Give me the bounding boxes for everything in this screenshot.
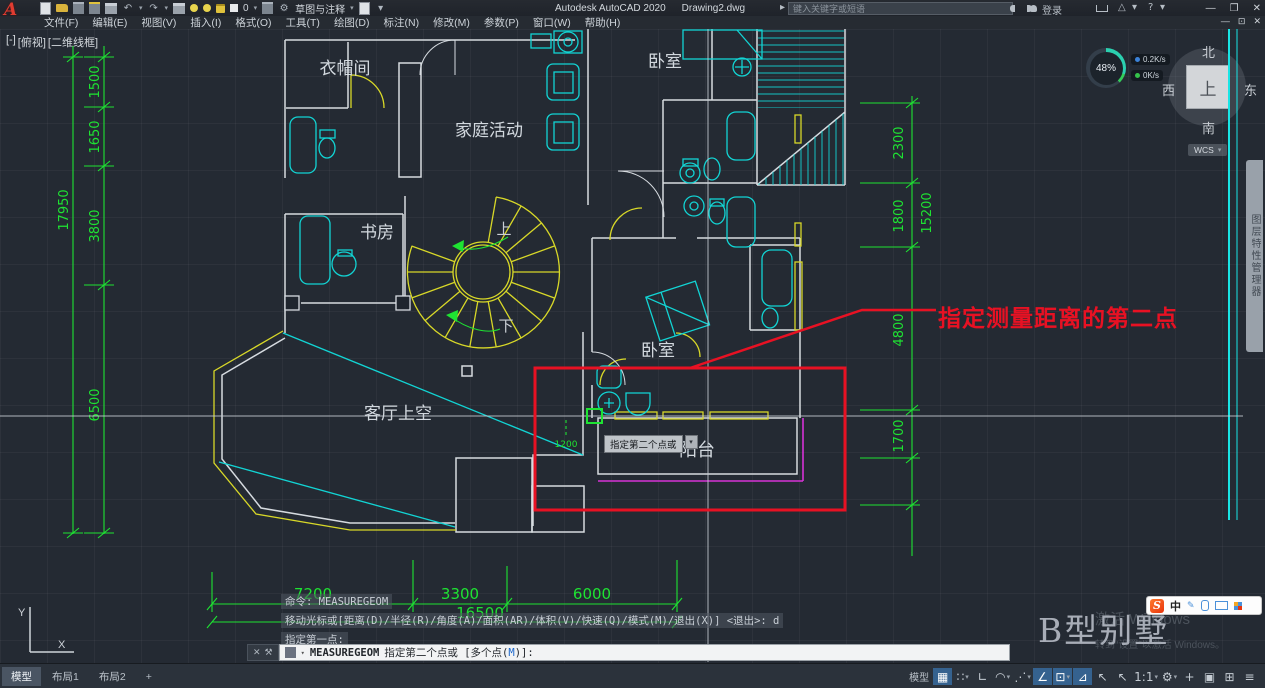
customization-button[interactable]: + — [1180, 668, 1199, 685]
help-search-input[interactable]: 键入关键字或短语 — [788, 2, 1013, 15]
layer-bulb-icon[interactable] — [190, 4, 198, 12]
gauge-percent: 48% — [1096, 63, 1116, 74]
close-button[interactable]: ✕ — [1253, 3, 1261, 14]
ime-toolbar: S 中 ✎ — [1146, 596, 1262, 615]
upload-dot-icon — [1135, 57, 1140, 62]
help-icon[interactable]: ? — [1148, 2, 1153, 13]
layer-lock-icon[interactable] — [216, 4, 225, 13]
autodesk-app-caret-icon[interactable]: ▾ — [1132, 2, 1137, 13]
viewcube-top-face[interactable]: 上 — [1186, 65, 1230, 109]
app-title: Autodesk AutoCAD 2020 — [555, 3, 666, 14]
annotation-scale-button[interactable]: 1:1▾ — [1133, 668, 1159, 685]
viewcube-east[interactable]: 东 — [1244, 80, 1257, 99]
ime-mic-icon[interactable] — [1201, 600, 1209, 611]
layer-combo-caret-icon[interactable]: ▾ — [254, 4, 258, 12]
menu-draw[interactable]: 绘图(D) — [328, 15, 376, 30]
workspace-save-icon[interactable] — [262, 2, 273, 14]
command-badge-icon — [285, 647, 296, 658]
doc-minimize-button[interactable]: — — [1221, 16, 1230, 27]
selection-cycling-button[interactable]: ↖ — [1093, 668, 1112, 685]
workspace-combo-caret-icon[interactable]: ▾ — [350, 4, 354, 12]
undo-caret-icon[interactable]: ▾ — [139, 4, 143, 12]
polar-tracking-button[interactable]: ◠▾ — [993, 668, 1012, 685]
viewcube-north[interactable]: 北 — [1202, 42, 1215, 61]
active-command: MEASUREGEOM — [310, 647, 380, 659]
tab-add-layout[interactable]: + — [137, 669, 161, 685]
view-control-button[interactable]: [俯视] — [18, 34, 46, 50]
layer-freeze-icon[interactable] — [203, 4, 211, 12]
ortho-toggle-button[interactable]: ∟ — [973, 668, 992, 685]
match-properties-icon[interactable] — [359, 2, 370, 15]
print-icon[interactable] — [173, 3, 185, 14]
new-file-icon[interactable] — [40, 2, 51, 15]
object-snap-tracking-button[interactable]: ∠ — [1033, 668, 1052, 685]
tooltip-text: 指定第二个点或 — [604, 435, 683, 453]
space-toggle-button[interactable]: 模型 — [906, 669, 932, 684]
menu-view[interactable]: 视图(V) — [135, 15, 182, 30]
download-dot-icon — [1135, 73, 1140, 78]
user-icon[interactable] — [1030, 4, 1037, 15]
autocad-logo[interactable]: A — [4, 0, 28, 26]
plot-icon[interactable] — [105, 3, 117, 14]
dynamic-input-tooltip: 指定第二个点或 ▾ — [604, 435, 698, 453]
viewcube-west[interactable]: 西 — [1162, 80, 1175, 99]
command-close-icon[interactable]: ✕ — [253, 648, 261, 658]
menu-window[interactable]: 窗口(W) — [527, 15, 577, 30]
object-snap-button[interactable]: ⊿ — [1073, 668, 1092, 685]
ime-toolbox-icon[interactable] — [1234, 602, 1242, 610]
ime-pen-icon[interactable]: ✎ — [1187, 601, 1195, 611]
tab-layout2[interactable]: 布局2 — [90, 667, 135, 686]
menu-insert[interactable]: 插入(I) — [184, 15, 227, 30]
isolate-objects-button[interactable]: ▣ — [1200, 668, 1219, 685]
menu-dimension[interactable]: 标注(N) — [378, 15, 426, 30]
menu-help[interactable]: 帮助(H) — [579, 15, 627, 30]
command-history-line1: 命令: MEASUREGEOM — [281, 594, 392, 609]
wcs-label: WCS — [1194, 145, 1214, 155]
command-line-bar: ✕ ⚒ ▾ MEASUREGEOM 指定第二个点或 [多个点(M)]: — [247, 644, 1010, 661]
menu-edit[interactable]: 编辑(E) — [86, 15, 133, 30]
menu-bar: 文件(F) 编辑(E) 视图(V) 插入(I) 格式(O) 工具(T) 绘图(D… — [0, 16, 1265, 29]
doc-close-button[interactable]: ✕ — [1253, 16, 1261, 27]
layer-color-swatch — [230, 4, 238, 12]
doc-restore-button[interactable]: ⊡ — [1238, 16, 1246, 27]
status-bar: 模型 布局1 布局2 + 模型 ▦ ∷▾ ∟ ◠▾ ⋰▾ ∠ ⊡▾ ⊿ ↖ ↖ … — [0, 663, 1265, 688]
status-menu-button[interactable]: ≡ — [1240, 668, 1259, 685]
grid-toggle-button[interactable]: ▦ — [933, 668, 952, 685]
app-store-cart-icon[interactable] — [1096, 4, 1108, 15]
menu-modify[interactable]: 修改(M) — [427, 15, 476, 30]
sogou-logo-icon[interactable]: S — [1150, 599, 1164, 613]
command-history-line2: 移动光标或[距离(D)/半径(R)/角度(A)/面积(AR)/体积(V)/快速(… — [281, 613, 783, 628]
workspace-combo-value[interactable]: 草图与注释 — [295, 1, 345, 16]
status-toggles: 模型 ▦ ∷▾ ∟ ◠▾ ⋰▾ ∠ ⊡▾ ⊿ ↖ ↖ 1:1▾ ⚙▾ + ▣ ⊞… — [906, 668, 1265, 685]
view-cube[interactable]: 北 西 东 南 上 — [1160, 40, 1260, 140]
annotation-visibility-button[interactable]: ↖ — [1113, 668, 1132, 685]
command-input[interactable]: ▾ MEASUREGEOM 指定第二个点或 [多个点(M)]: — [279, 644, 1010, 661]
tooltip-down-arrow-icon: ▾ — [685, 435, 698, 449]
visual-style-button[interactable]: [二维线框] — [48, 34, 98, 50]
command-line-grip[interactable]: ✕ ⚒ — [247, 644, 279, 661]
doc-title: Drawing2.dwg — [682, 3, 745, 14]
sign-in-button[interactable]: 登录 — [1042, 2, 1062, 17]
wcs-menu[interactable]: WCS ▾ — [1188, 144, 1227, 156]
help-caret-icon[interactable]: ▾ — [1160, 2, 1165, 13]
save-as-icon[interactable] — [89, 2, 100, 14]
document-window-controls: — ⊡ ✕ — [1221, 16, 1261, 27]
open-file-icon[interactable] — [56, 4, 68, 12]
menu-tools[interactable]: 工具(T) — [280, 15, 326, 30]
snap-toggle-button[interactable]: ∷▾ — [953, 668, 972, 685]
save-icon[interactable] — [73, 2, 84, 14]
recent-commands-caret-icon[interactable]: ▾ — [301, 649, 305, 657]
minimize-button[interactable]: — — [1206, 3, 1216, 14]
window-title: Autodesk AutoCAD 2020 Drawing2.dwg — [555, 0, 745, 16]
tab-layout1[interactable]: 布局1 — [43, 667, 88, 686]
autodesk-app-icon[interactable]: △ — [1118, 2, 1126, 13]
viewcube-south[interactable]: 南 — [1202, 118, 1215, 137]
quick-access-toolbar: ↶ ▾ ↷ ▾ 0 ▾ ⚙ 草图与注释 ▾ ▾ — [40, 1, 387, 16]
performance-gauge[interactable]: 48% — [1086, 48, 1126, 88]
viewport-controls: [-] [俯视] [二维线框] — [6, 34, 98, 50]
collapsed-palette-tab[interactable]: 图层特性管理器 — [1246, 160, 1263, 352]
command-prompt: 指定第二个点或 [多个点(M)]: — [384, 645, 533, 660]
net-down-badge: 0K/s — [1131, 70, 1163, 81]
menu-parametric[interactable]: 参数(P) — [478, 15, 525, 30]
model-space-canvas[interactable] — [0, 29, 1265, 663]
isodraft-button[interactable]: ⋰▾ — [1013, 668, 1032, 685]
redo-caret-icon[interactable]: ▾ — [165, 4, 169, 12]
command-customize-icon[interactable]: ⚒ — [265, 648, 273, 658]
viewport-menu-button[interactable]: [-] — [6, 34, 16, 50]
ime-mode-indicator[interactable]: 中 — [1170, 598, 1181, 614]
maximize-button[interactable]: ❐ — [1230, 3, 1239, 14]
menu-format[interactable]: 格式(O) — [229, 15, 277, 30]
redo-icon[interactable]: ↷ — [148, 3, 160, 14]
undo-icon[interactable]: ↶ — [122, 3, 134, 14]
dynamic-input-button[interactable]: ⊡▾ — [1053, 668, 1072, 685]
net-down-rate: 0K/s — [1143, 71, 1159, 80]
clean-screen-button[interactable]: ⊞ — [1220, 668, 1239, 685]
search-icon[interactable] — [1010, 4, 1032, 15]
menu-file[interactable]: 文件(F) — [38, 15, 84, 30]
title-bar: ↶ ▾ ↷ ▾ 0 ▾ ⚙ 草图与注释 ▾ ▾ Autodesk AutoCAD… — [0, 0, 1265, 16]
autocad-window: ↶ ▾ ↷ ▾ 0 ▾ ⚙ 草图与注释 ▾ ▾ Autodesk AutoCAD… — [0, 0, 1265, 688]
search-placeholder: 键入关键字或短语 — [793, 2, 865, 15]
layer-combo-value[interactable]: 0 — [243, 3, 249, 14]
tab-model[interactable]: 模型 — [2, 667, 41, 686]
qat-more-icon[interactable]: ▾ — [375, 3, 387, 14]
ime-keyboard-icon[interactable] — [1215, 601, 1228, 610]
wcs-caret-icon: ▾ — [1218, 146, 1222, 154]
activate-windows-subtext: 转到“设置”以激活 Windows。 — [1095, 636, 1225, 651]
search-expand-icon[interactable]: ▸ — [780, 2, 785, 13]
workspace-gear-icon[interactable]: ⚙ — [278, 3, 290, 14]
measure-annotation-text: 指定测量距离的第二点 — [938, 299, 1178, 333]
workspace-switch-button[interactable]: ⚙▾ — [1160, 668, 1179, 685]
